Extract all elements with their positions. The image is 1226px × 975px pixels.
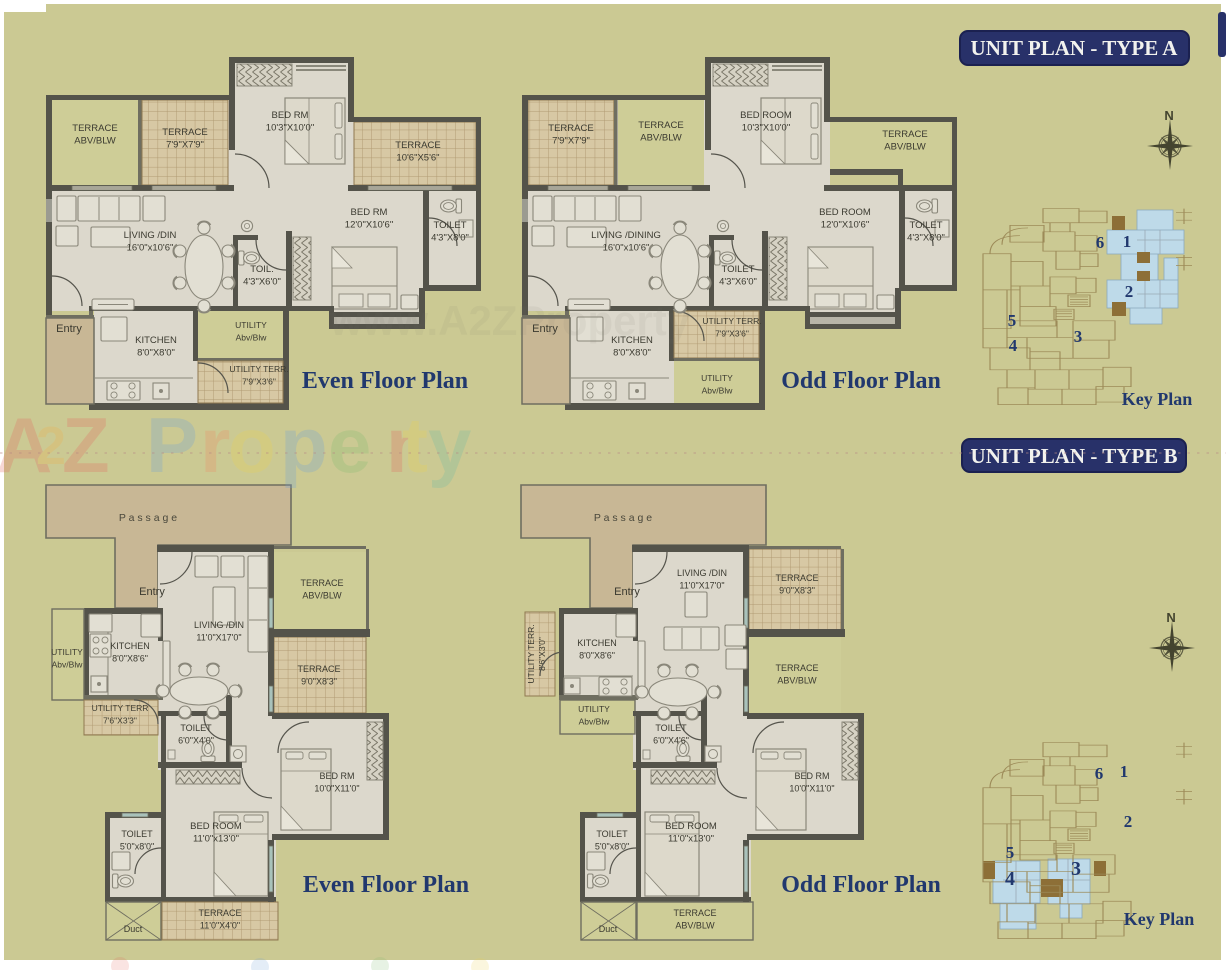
svg-text:Abv/Blw: Abv/Blw [702, 386, 734, 396]
svg-text:Key Plan: Key Plan [1122, 389, 1193, 409]
svg-text:7'9"X7'9": 7'9"X7'9" [166, 140, 204, 151]
svg-text:TOILET: TOILET [596, 829, 628, 839]
svg-text:UTILITY: UTILITY [578, 704, 610, 714]
svg-text:UNIT PLAN - TYPE A: UNIT PLAN - TYPE A [971, 36, 1179, 60]
svg-text:BED ROOM: BED ROOM [190, 821, 242, 832]
svg-text:TERRACE: TERRACE [72, 123, 117, 134]
svg-text:3: 3 [1071, 858, 1081, 880]
svg-text:TERRACE: TERRACE [775, 573, 818, 583]
svg-text:8'0"X8'6": 8'0"X8'6" [579, 651, 615, 661]
svg-text:TERRACE: TERRACE [882, 129, 927, 140]
svg-text:UNIT PLAN - TYPE B: UNIT PLAN - TYPE B [971, 444, 1178, 468]
svg-text:Key Plan: Key Plan [1124, 909, 1195, 929]
svg-text:4'3"X6'0": 4'3"X6'0" [719, 277, 757, 288]
svg-text:UTILITY: UTILITY [235, 320, 267, 330]
svg-text:Duct: Duct [124, 924, 143, 934]
svg-text:16'0"x10'6": 16'0"x10'6" [127, 243, 174, 254]
svg-text:6: 6 [1095, 764, 1104, 783]
svg-text:Entry: Entry [614, 586, 640, 598]
svg-text:5'0"x8'0": 5'0"x8'0" [595, 842, 629, 852]
svg-text:Abv/Blw: Abv/Blw [236, 333, 268, 343]
svg-text:www.A2ZProperty: www.A2ZProperty [329, 297, 691, 344]
svg-text:UTILITY TERR.: UTILITY TERR. [229, 364, 288, 374]
svg-text:ABV/BLW: ABV/BLW [884, 142, 926, 153]
svg-text:3: 3 [1074, 327, 1083, 346]
svg-text:1: 1 [1123, 232, 1132, 251]
svg-text:TOILET: TOILET [909, 220, 942, 231]
svg-text:2: 2 [1124, 812, 1133, 831]
svg-text:TERRACE: TERRACE [775, 663, 818, 673]
svg-text:P a s s a g e: P a s s a g e [119, 512, 177, 524]
svg-text:ABV/BLW: ABV/BLW [74, 136, 116, 147]
svg-text:KITCHEN: KITCHEN [577, 638, 617, 648]
svg-text:Duct: Duct [599, 924, 618, 934]
svg-text:12'0"X10'6": 12'0"X10'6" [345, 220, 393, 231]
svg-text:Entry: Entry [56, 323, 82, 335]
svg-text:LIVING /DIN: LIVING /DIN [124, 230, 177, 241]
svg-text:UTILITY TERR.: UTILITY TERR. [526, 624, 536, 683]
svg-text:4: 4 [1005, 868, 1015, 890]
svg-text:8'0"X8'0": 8'0"X8'0" [613, 348, 651, 359]
svg-text:ABV/BLW: ABV/BLW [777, 676, 817, 686]
svg-text:p: p [280, 401, 328, 489]
svg-text:TERRACE: TERRACE [198, 908, 241, 918]
svg-text:12'0"X10'6": 12'0"X10'6" [821, 220, 869, 231]
svg-text:P: P [146, 401, 198, 489]
svg-text:Odd Floor Plan: Odd Floor Plan [781, 368, 941, 394]
svg-text:N: N [1166, 610, 1175, 625]
svg-text:6'0"X4'0": 6'0"X4'0" [178, 736, 214, 746]
svg-text:Entry: Entry [139, 586, 165, 598]
svg-text:UTILITY: UTILITY [51, 647, 83, 657]
svg-text:Even Floor Plan: Even Floor Plan [303, 872, 469, 898]
svg-text:5: 5 [1008, 311, 1017, 330]
svg-text:LIVING /DIN: LIVING /DIN [677, 568, 727, 578]
svg-text:4'3"X8'0": 4'3"X8'0" [907, 233, 945, 244]
svg-text:11'0"X17'0": 11'0"X17'0" [679, 581, 724, 591]
svg-text:TERRACE: TERRACE [548, 123, 593, 134]
svg-text:1: 1 [1120, 762, 1129, 781]
svg-text:Odd Floor Plan: Odd Floor Plan [781, 872, 941, 898]
svg-text:P a s s a g e: P a s s a g e [594, 512, 652, 524]
svg-text:TERRACE: TERRACE [673, 908, 716, 918]
svg-text:TOILET: TOILET [433, 220, 466, 231]
svg-text:UTILITY TERR: UTILITY TERR [92, 703, 149, 713]
svg-text:BED RM: BED RM [351, 207, 388, 218]
svg-text:10'0"X11'0": 10'0"X11'0" [314, 784, 359, 794]
svg-text:TERRACE: TERRACE [395, 140, 440, 151]
svg-text:o: o [228, 401, 276, 489]
svg-text:TOILET: TOILET [180, 723, 212, 733]
svg-text:7'9"X3'6": 7'9"X3'6" [242, 377, 276, 387]
svg-text:r: r [200, 401, 230, 489]
svg-text:N: N [1164, 108, 1173, 123]
svg-text:BED ROOM: BED ROOM [819, 207, 871, 218]
svg-text:10'0"X11'0": 10'0"X11'0" [789, 784, 834, 794]
svg-text:BED ROOM: BED ROOM [740, 110, 792, 121]
svg-text:TERRACE: TERRACE [300, 578, 343, 588]
svg-text:ABV/BLW: ABV/BLW [302, 591, 342, 601]
svg-text:7'9"X7'9": 7'9"X7'9" [552, 136, 590, 147]
svg-text:BED ROOM: BED ROOM [665, 821, 717, 832]
svg-text:7'9"X3'6": 7'9"X3'6" [715, 329, 749, 339]
svg-text:TOILET: TOILET [121, 829, 153, 839]
svg-text:9'0"X8'3": 9'0"X8'3" [301, 677, 337, 687]
svg-text:7'6"X3'3": 7'6"X3'3" [103, 716, 137, 726]
svg-text:UTILITY: UTILITY [701, 373, 733, 383]
svg-text:UTILITY TERR.: UTILITY TERR. [702, 316, 761, 326]
svg-text:Abv/Blw: Abv/Blw [52, 660, 84, 670]
svg-text:TERRACE: TERRACE [297, 664, 340, 674]
svg-text:16'0"x10'6": 16'0"x10'6" [603, 243, 650, 254]
svg-text:4'3"X6'0": 4'3"X6'0" [243, 277, 281, 288]
svg-text:6: 6 [1096, 233, 1105, 252]
svg-text:6'0"X4'6": 6'0"X4'6" [653, 736, 689, 746]
svg-text:t: t [402, 401, 428, 489]
svg-text:11'0"X17'0": 11'0"X17'0" [196, 633, 241, 643]
svg-text:4: 4 [1009, 336, 1018, 355]
svg-text:Abv/Blw: Abv/Blw [579, 717, 611, 727]
svg-text:TOIL.: TOIL. [250, 264, 274, 275]
svg-text:5: 5 [1006, 843, 1015, 862]
svg-text:5'0"x8'0": 5'0"x8'0" [120, 842, 154, 852]
svg-text:ABV/BLW: ABV/BLW [675, 921, 715, 931]
svg-text:KITCHEN: KITCHEN [135, 335, 177, 346]
svg-text:9'0"X8'3": 9'0"X8'3" [779, 586, 815, 596]
svg-text:ABV/BLW: ABV/BLW [640, 133, 682, 144]
svg-text:11'0"x13'0": 11'0"x13'0" [668, 834, 714, 845]
svg-text:e: e [328, 401, 371, 489]
svg-text:BED RM: BED RM [794, 771, 829, 781]
svg-text:2: 2 [1125, 282, 1134, 301]
svg-text:4'3"X8'0": 4'3"X8'0" [431, 233, 469, 244]
svg-text:KITCHEN: KITCHEN [110, 641, 150, 651]
svg-text:10'3"X10'0": 10'3"X10'0" [266, 123, 314, 134]
svg-text:BED RM: BED RM [319, 771, 354, 781]
svg-text:11'0"x13'0": 11'0"x13'0" [193, 834, 239, 845]
svg-text:y: y [428, 401, 471, 489]
svg-text:8'0"X8'6": 8'0"X8'6" [112, 654, 148, 664]
svg-text:TOILET: TOILET [655, 723, 687, 733]
svg-text:LIVING /DIN: LIVING /DIN [194, 620, 244, 630]
svg-text:BED RM: BED RM [272, 110, 309, 121]
svg-text:8'0"X8'0": 8'0"X8'0" [137, 348, 175, 359]
svg-text:Z: Z [62, 401, 110, 489]
svg-text:10'3"X10'0": 10'3"X10'0" [742, 123, 790, 134]
svg-text:LIVING /DINING: LIVING /DINING [591, 230, 661, 241]
svg-text:10'6"X5'6": 10'6"X5'6" [396, 153, 439, 164]
svg-text:11'0"X4'0": 11'0"X4'0" [200, 921, 240, 931]
svg-text:TERRACE: TERRACE [162, 127, 207, 138]
svg-text:TERRACE: TERRACE [638, 120, 683, 131]
svg-text:TOILET: TOILET [721, 264, 754, 275]
svg-text:Even Floor Plan: Even Floor Plan [302, 368, 468, 394]
